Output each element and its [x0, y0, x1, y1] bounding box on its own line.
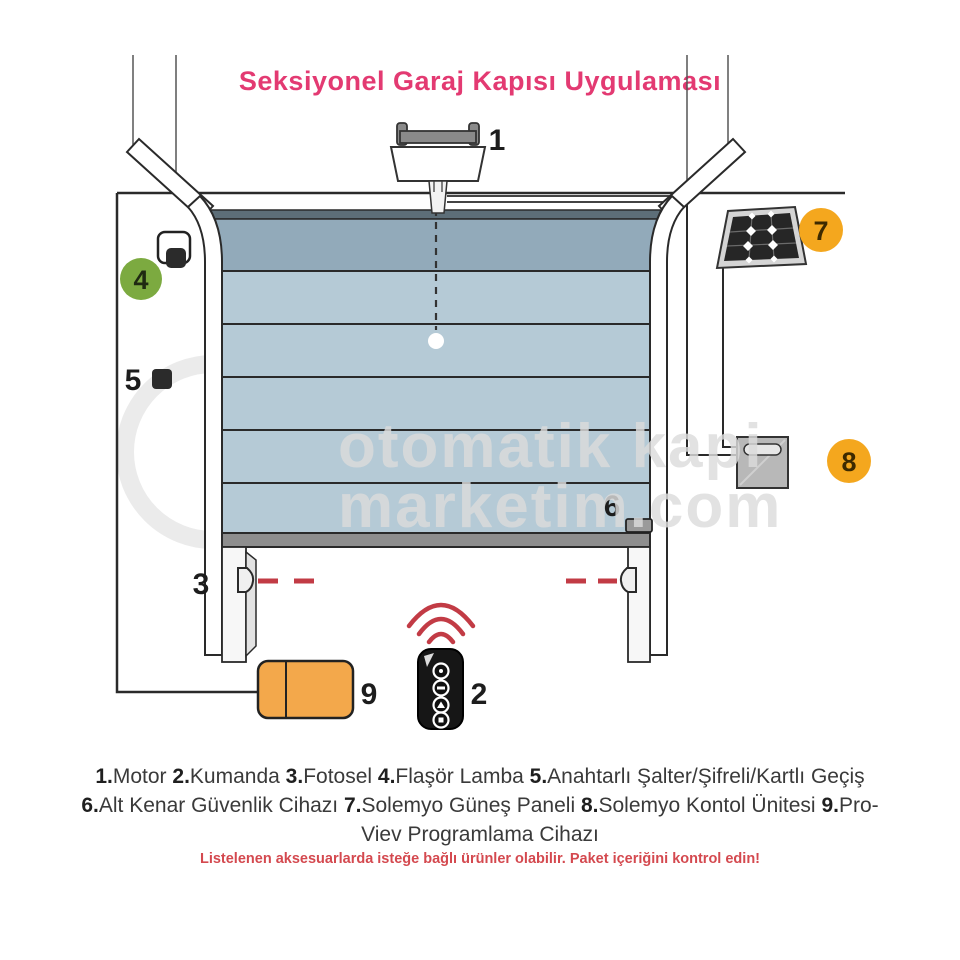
- left-photocell-icon: [238, 568, 253, 592]
- callout-3: 3: [193, 568, 210, 601]
- badge-7: 7: [799, 208, 843, 252]
- motor-rail-line: [447, 196, 687, 202]
- badge-4: 4: [120, 258, 162, 300]
- callout-4: 4: [133, 265, 148, 295]
- garage-door-diagram: 1 4 5 3 6: [0, 0, 960, 745]
- badge-8: 8: [827, 439, 871, 483]
- callout-1: 1: [489, 124, 506, 157]
- key-switch-icon: [152, 369, 172, 389]
- callout-9: 9: [361, 678, 378, 711]
- remote-signal-icon: [409, 605, 473, 642]
- flasher-lamp-icon: [158, 232, 190, 268]
- legend: 1.Motor 2.Kumanda 3.Fotosel 4.Flaşör Lam…: [75, 762, 885, 849]
- right-jamb-post: [628, 547, 650, 662]
- solar-panel-icon: [717, 207, 806, 268]
- legend-note: Listelenen aksesuarlarda isteğe bağlı ür…: [0, 851, 960, 867]
- callout-5: 5: [125, 364, 142, 397]
- right-photocell-icon: [621, 568, 636, 592]
- callout-7: 7: [813, 216, 828, 246]
- callout-8: 8: [841, 447, 856, 477]
- programmer-icon: [258, 661, 353, 718]
- left-jamb-post: [222, 547, 256, 662]
- motor-icon: [391, 123, 485, 213]
- watermark-line2: marketim.com: [338, 472, 782, 541]
- diagram-canvas: Seksiyonel Garaj Kapısı Uygulaması: [0, 0, 960, 960]
- legend-items: 1.Motor 2.Kumanda 3.Fotosel 4.Flaşör Lam…: [81, 765, 878, 846]
- remote-control-icon: [418, 649, 463, 729]
- watermark-line1: otomatik kapi: [338, 412, 764, 481]
- door-center-dot: [428, 333, 444, 349]
- callout-2: 2: [471, 678, 488, 711]
